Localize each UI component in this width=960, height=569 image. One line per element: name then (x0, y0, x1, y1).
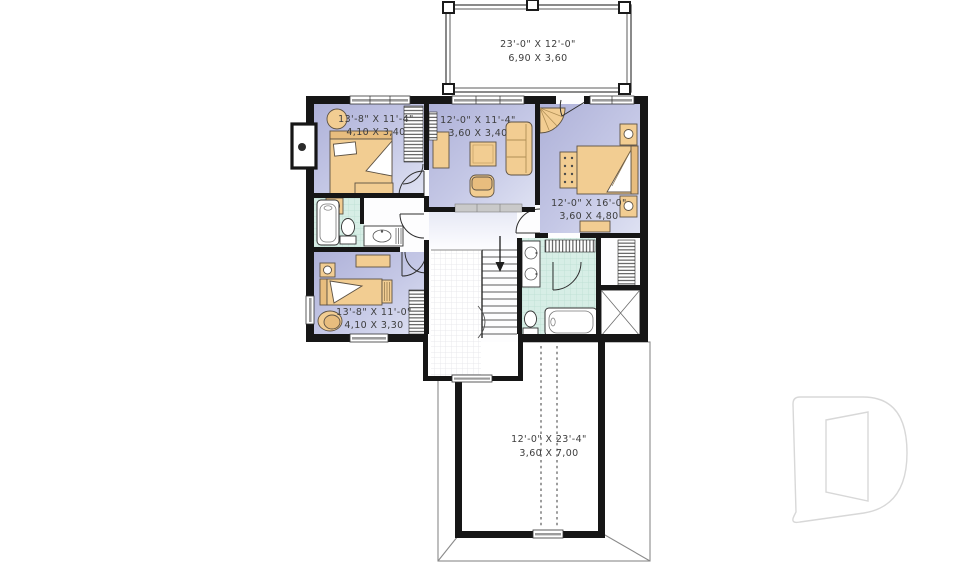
floor-plan-drawing: 23'-0" X 12'-0" 6,90 X 3,60 (0, 0, 960, 569)
dresser-icon (356, 255, 390, 267)
sitting-room-dimensions-metric: 3,60 X 3,40 (448, 128, 507, 139)
toilet-icon (340, 219, 356, 245)
deck-dimensions-metric: 6,90 X 3,60 (508, 53, 567, 64)
bedroom-top-left-dimensions-imperial: 13'-8" X 11'-4" (338, 114, 414, 125)
bathtub-icon (317, 200, 339, 245)
bedroom-bottom-left-dimensions-imperial: 13'-8" X 11'-0" (336, 307, 412, 318)
bench-icon (382, 280, 392, 303)
table-icon (470, 142, 496, 166)
bed-icon (320, 279, 382, 305)
window-stair-landing (452, 375, 492, 382)
shower-icon (601, 290, 640, 336)
closet-hatch-icon (618, 240, 635, 287)
cased-opening-threshold (455, 204, 522, 212)
bed-icon (577, 146, 638, 194)
dresser-icon (560, 152, 577, 188)
master-bedroom-dimensions-metric: 3,60 X 4,80 (559, 211, 618, 222)
window-bedroom-bottom-left (350, 334, 388, 342)
window-bedroom-top-left (350, 96, 410, 104)
armchair-icon (470, 175, 494, 197)
nightstand-icon (320, 263, 335, 277)
garage-dimensions-metric: 3,60 X 7,00 (519, 448, 578, 459)
floor-plan-canvas: 23'-0" X 12'-0" 6,90 X 3,60 (0, 0, 960, 569)
stair-landing-tiles (431, 250, 481, 376)
nightstand-icon (620, 124, 637, 145)
drummond-d-logo (793, 397, 907, 522)
bathtub-icon (545, 308, 597, 336)
deck-dimensions-imperial: 23'-0" X 12'-0" (500, 39, 576, 50)
window-sitting-room (452, 96, 524, 104)
dresser-icon (580, 221, 610, 232)
master-bedroom-dimensions-imperial: 12'-0" X 16'-0" (551, 198, 627, 209)
sofa-icon (506, 122, 532, 175)
sink-icon (364, 226, 403, 246)
bedroom-top-left-dimensions-metric: 4,10 X 3,40 (346, 127, 405, 138)
closet-hatch-icon (429, 112, 437, 140)
bedroom-bottom-left-dimensions-metric: 4,10 X 3,30 (344, 320, 403, 331)
deck: 23'-0" X 12'-0" 6,90 X 3,60 (443, 0, 631, 94)
garage-window (533, 530, 563, 538)
garage-dimensions-imperial: 12'-0" X 23'-4" (511, 434, 587, 445)
double-sink-icon (522, 241, 540, 287)
toilet-icon (523, 311, 538, 335)
closet-hatch-icon (545, 240, 595, 252)
hall-floor (429, 212, 517, 250)
chimney-icon (292, 124, 316, 168)
window-bedroom-bottom-left-side (306, 296, 314, 324)
sitting-room-dimensions-imperial: 12'-0" X 11'-4" (440, 115, 516, 126)
window-master-bedroom (590, 96, 634, 104)
